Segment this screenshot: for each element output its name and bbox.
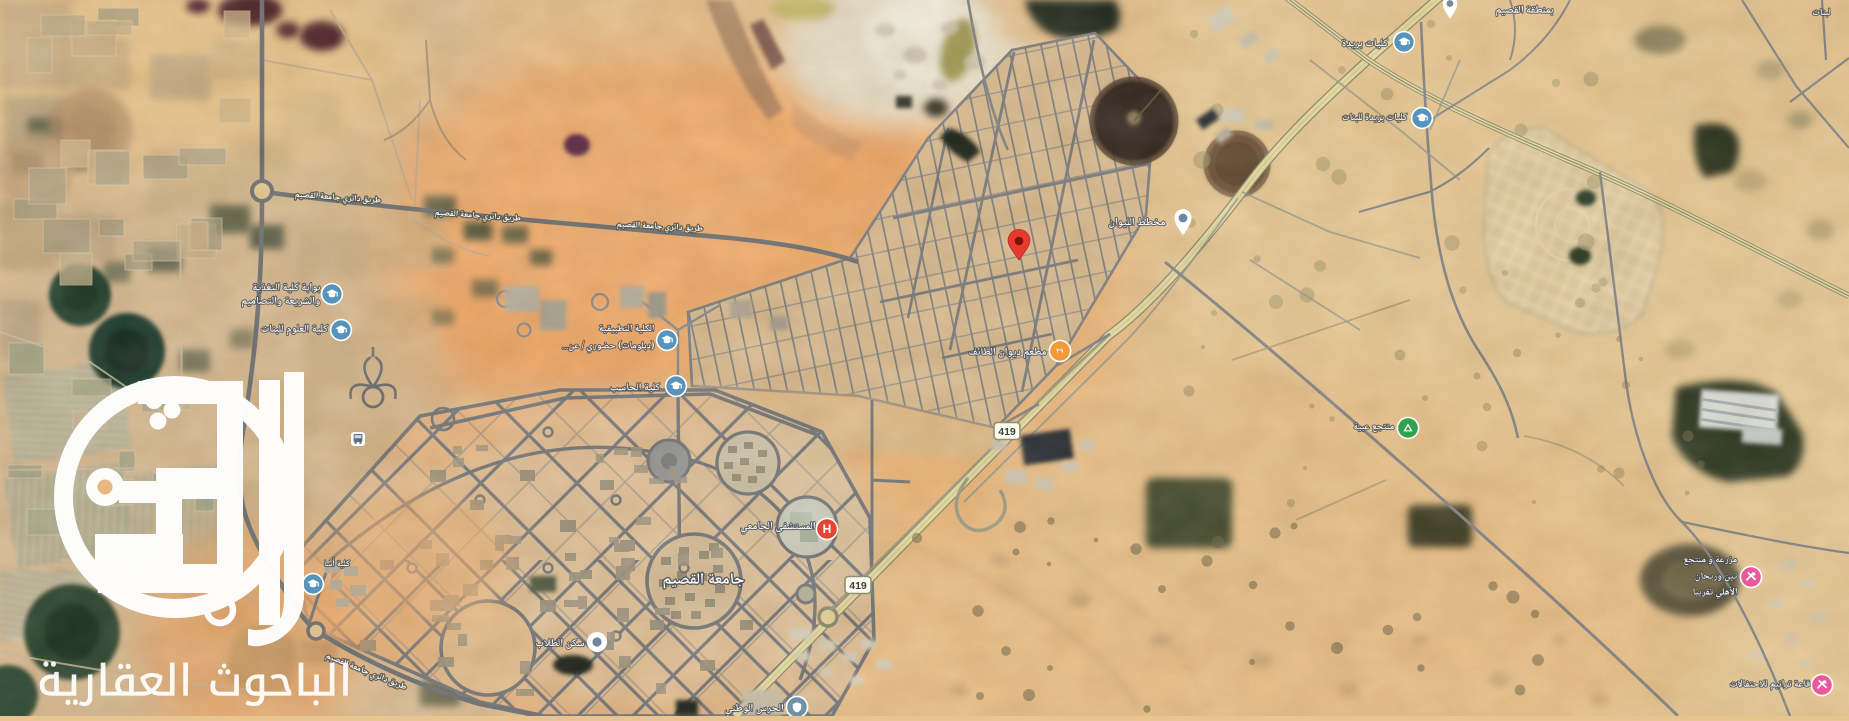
svg-text:H: H xyxy=(823,522,832,536)
svg-text:419: 419 xyxy=(998,426,1016,438)
svg-text:419: 419 xyxy=(849,580,867,592)
